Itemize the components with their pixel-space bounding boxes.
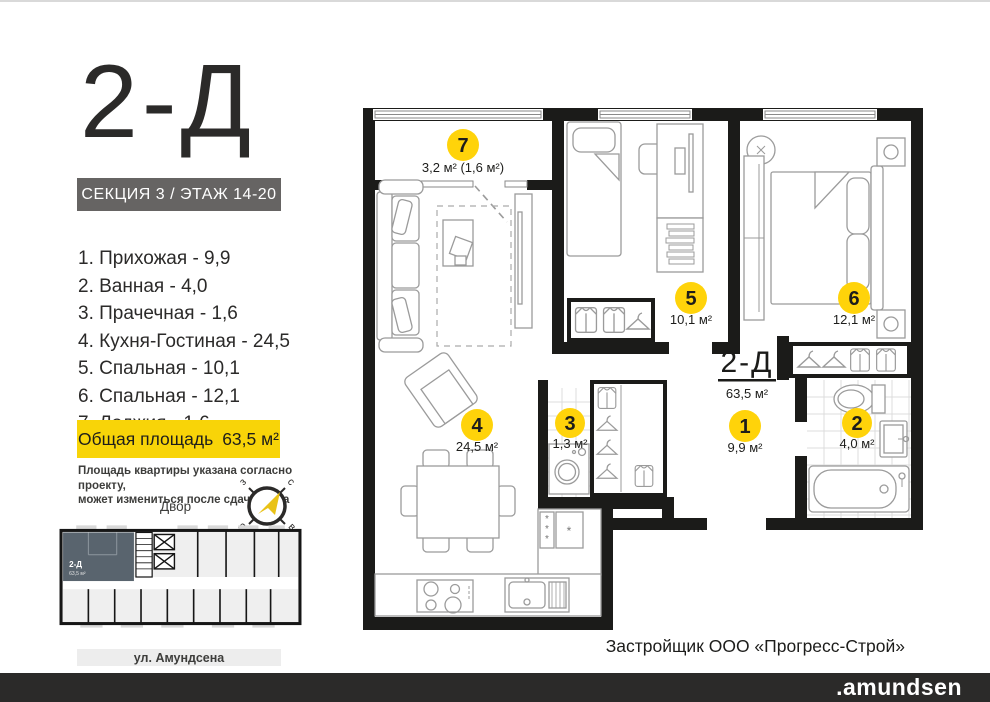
room-badge-5: 5 10,1 м² [670, 282, 713, 327]
compass-west: з [237, 476, 249, 488]
svg-text:*: * [567, 524, 572, 538]
nightstand [877, 310, 905, 338]
room-area-label-6: 12,1 м² [833, 312, 876, 327]
mini-unit-code: 2-Д [69, 560, 82, 569]
hall-closet [592, 382, 665, 495]
street-band: ул. Амундсена [77, 649, 281, 666]
room-badge-1: 1 9,9 м² [728, 410, 764, 455]
cabinet-bedroom6 [744, 156, 764, 320]
room-list-item: 2. Ванная - 4,0 [78, 273, 290, 301]
svg-text:3: 3 [564, 413, 575, 435]
brand-logo: .amundsen [836, 674, 962, 701]
bathroom-sink [880, 421, 909, 457]
room-list-item: 1. Прихожая - 9,9 [78, 245, 290, 273]
room-list-item: 5. Спальная - 10,1 [78, 355, 290, 383]
room-list-item: 4. Кухня-Гостиная - 24,5 [78, 328, 290, 356]
stairs [136, 532, 152, 577]
total-area-box: Общая площадь 63,5 м² [77, 420, 280, 458]
room-area-label-1: 9,9 м² [728, 440, 764, 455]
plan-unit-code: 2-Д [721, 346, 774, 379]
svg-text:1: 1 [739, 416, 750, 438]
tv-cabinet [515, 194, 532, 328]
svg-text:7: 7 [457, 135, 468, 157]
sofa [377, 180, 423, 352]
room-area-label-3: 1,3 м² [553, 436, 589, 451]
compass-north: с [285, 476, 297, 488]
balcony-door-swing [475, 186, 507, 222]
room-area-label-7: 3,2 м² (1,6 м²) [422, 160, 504, 175]
flat-brochure-page: 2-Д СЕКЦИЯ 3 / ЭТАЖ 14-20 1. Прихожая - … [0, 0, 990, 702]
bookshelf [657, 218, 703, 272]
plan-unit-label: 2-Д 63,5 м² [718, 346, 776, 401]
developer-label: Застройщик ООО «Прогресс-Строй» [606, 636, 905, 657]
svg-text:*: * [545, 534, 549, 545]
yard-label: Двор [160, 499, 191, 514]
wardrobe-strip [791, 344, 909, 376]
single-bed [567, 122, 621, 256]
section-floor-band: СЕКЦИЯ 3 / ЭТАЖ 14-20 [77, 178, 281, 211]
room-badge-3: 3 1,3 м² [553, 408, 589, 451]
mini-unit-area: 63,5 м² [69, 571, 86, 577]
room-list-item: 3. Прачечная - 1,6 [78, 300, 290, 328]
plan-unit-area: 63,5 м² [726, 386, 769, 401]
room-badge-4: 4 24,5 м² [456, 409, 499, 454]
room-area-label-4: 24,5 м² [456, 439, 499, 454]
mini-building-plan: 2-Д 63,5 м² [58, 524, 303, 630]
wardrobe-bedroom5 [569, 300, 653, 340]
desk [639, 124, 703, 218]
svg-text:6: 6 [848, 288, 859, 310]
room-badge-7: 7 3,2 м² (1,6 м²) [422, 129, 504, 175]
footer-bar: .amundsen [0, 673, 990, 702]
total-area-label: Общая площадь [78, 429, 213, 450]
floor-plan: * * * * [357, 88, 937, 644]
total-area-value: 63,5 м² [222, 429, 279, 450]
nightstand [877, 138, 905, 166]
bathtub [809, 466, 909, 512]
svg-text:2: 2 [851, 413, 862, 435]
room-area-label-2: 4,0 м² [840, 436, 876, 451]
svg-text:5: 5 [685, 288, 696, 310]
room-list: 1. Прихожая - 9,9 2. Ванная - 4,0 3. Пра… [78, 245, 290, 438]
svg-text:4: 4 [471, 415, 483, 437]
unit-code-title: 2-Д [80, 48, 255, 157]
room-list-item: 6. Спальная - 12,1 [78, 383, 290, 411]
coffee-desk [443, 220, 473, 266]
washing-machine [549, 444, 589, 494]
room-area-label-5: 10,1 м² [670, 312, 713, 327]
dining-table [401, 450, 515, 552]
